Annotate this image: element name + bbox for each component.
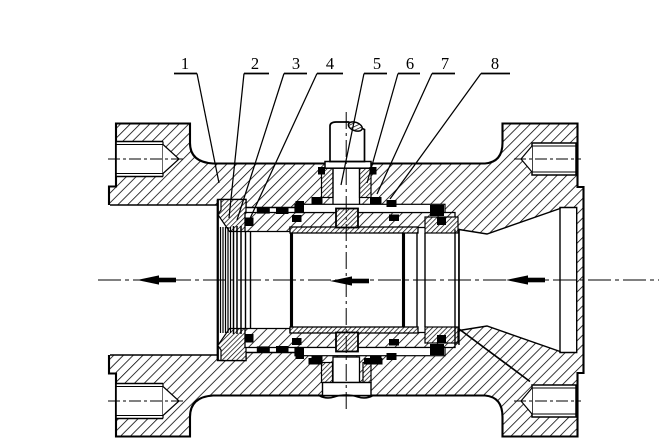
- svg-text:1: 1: [181, 54, 189, 73]
- svg-text:7: 7: [441, 54, 449, 73]
- svg-text:8: 8: [491, 54, 499, 73]
- svg-text:3: 3: [292, 54, 300, 73]
- svg-text:5: 5: [373, 54, 381, 73]
- svg-text:2: 2: [251, 54, 259, 73]
- svg-text:6: 6: [406, 54, 414, 73]
- svg-text:4: 4: [326, 54, 334, 73]
